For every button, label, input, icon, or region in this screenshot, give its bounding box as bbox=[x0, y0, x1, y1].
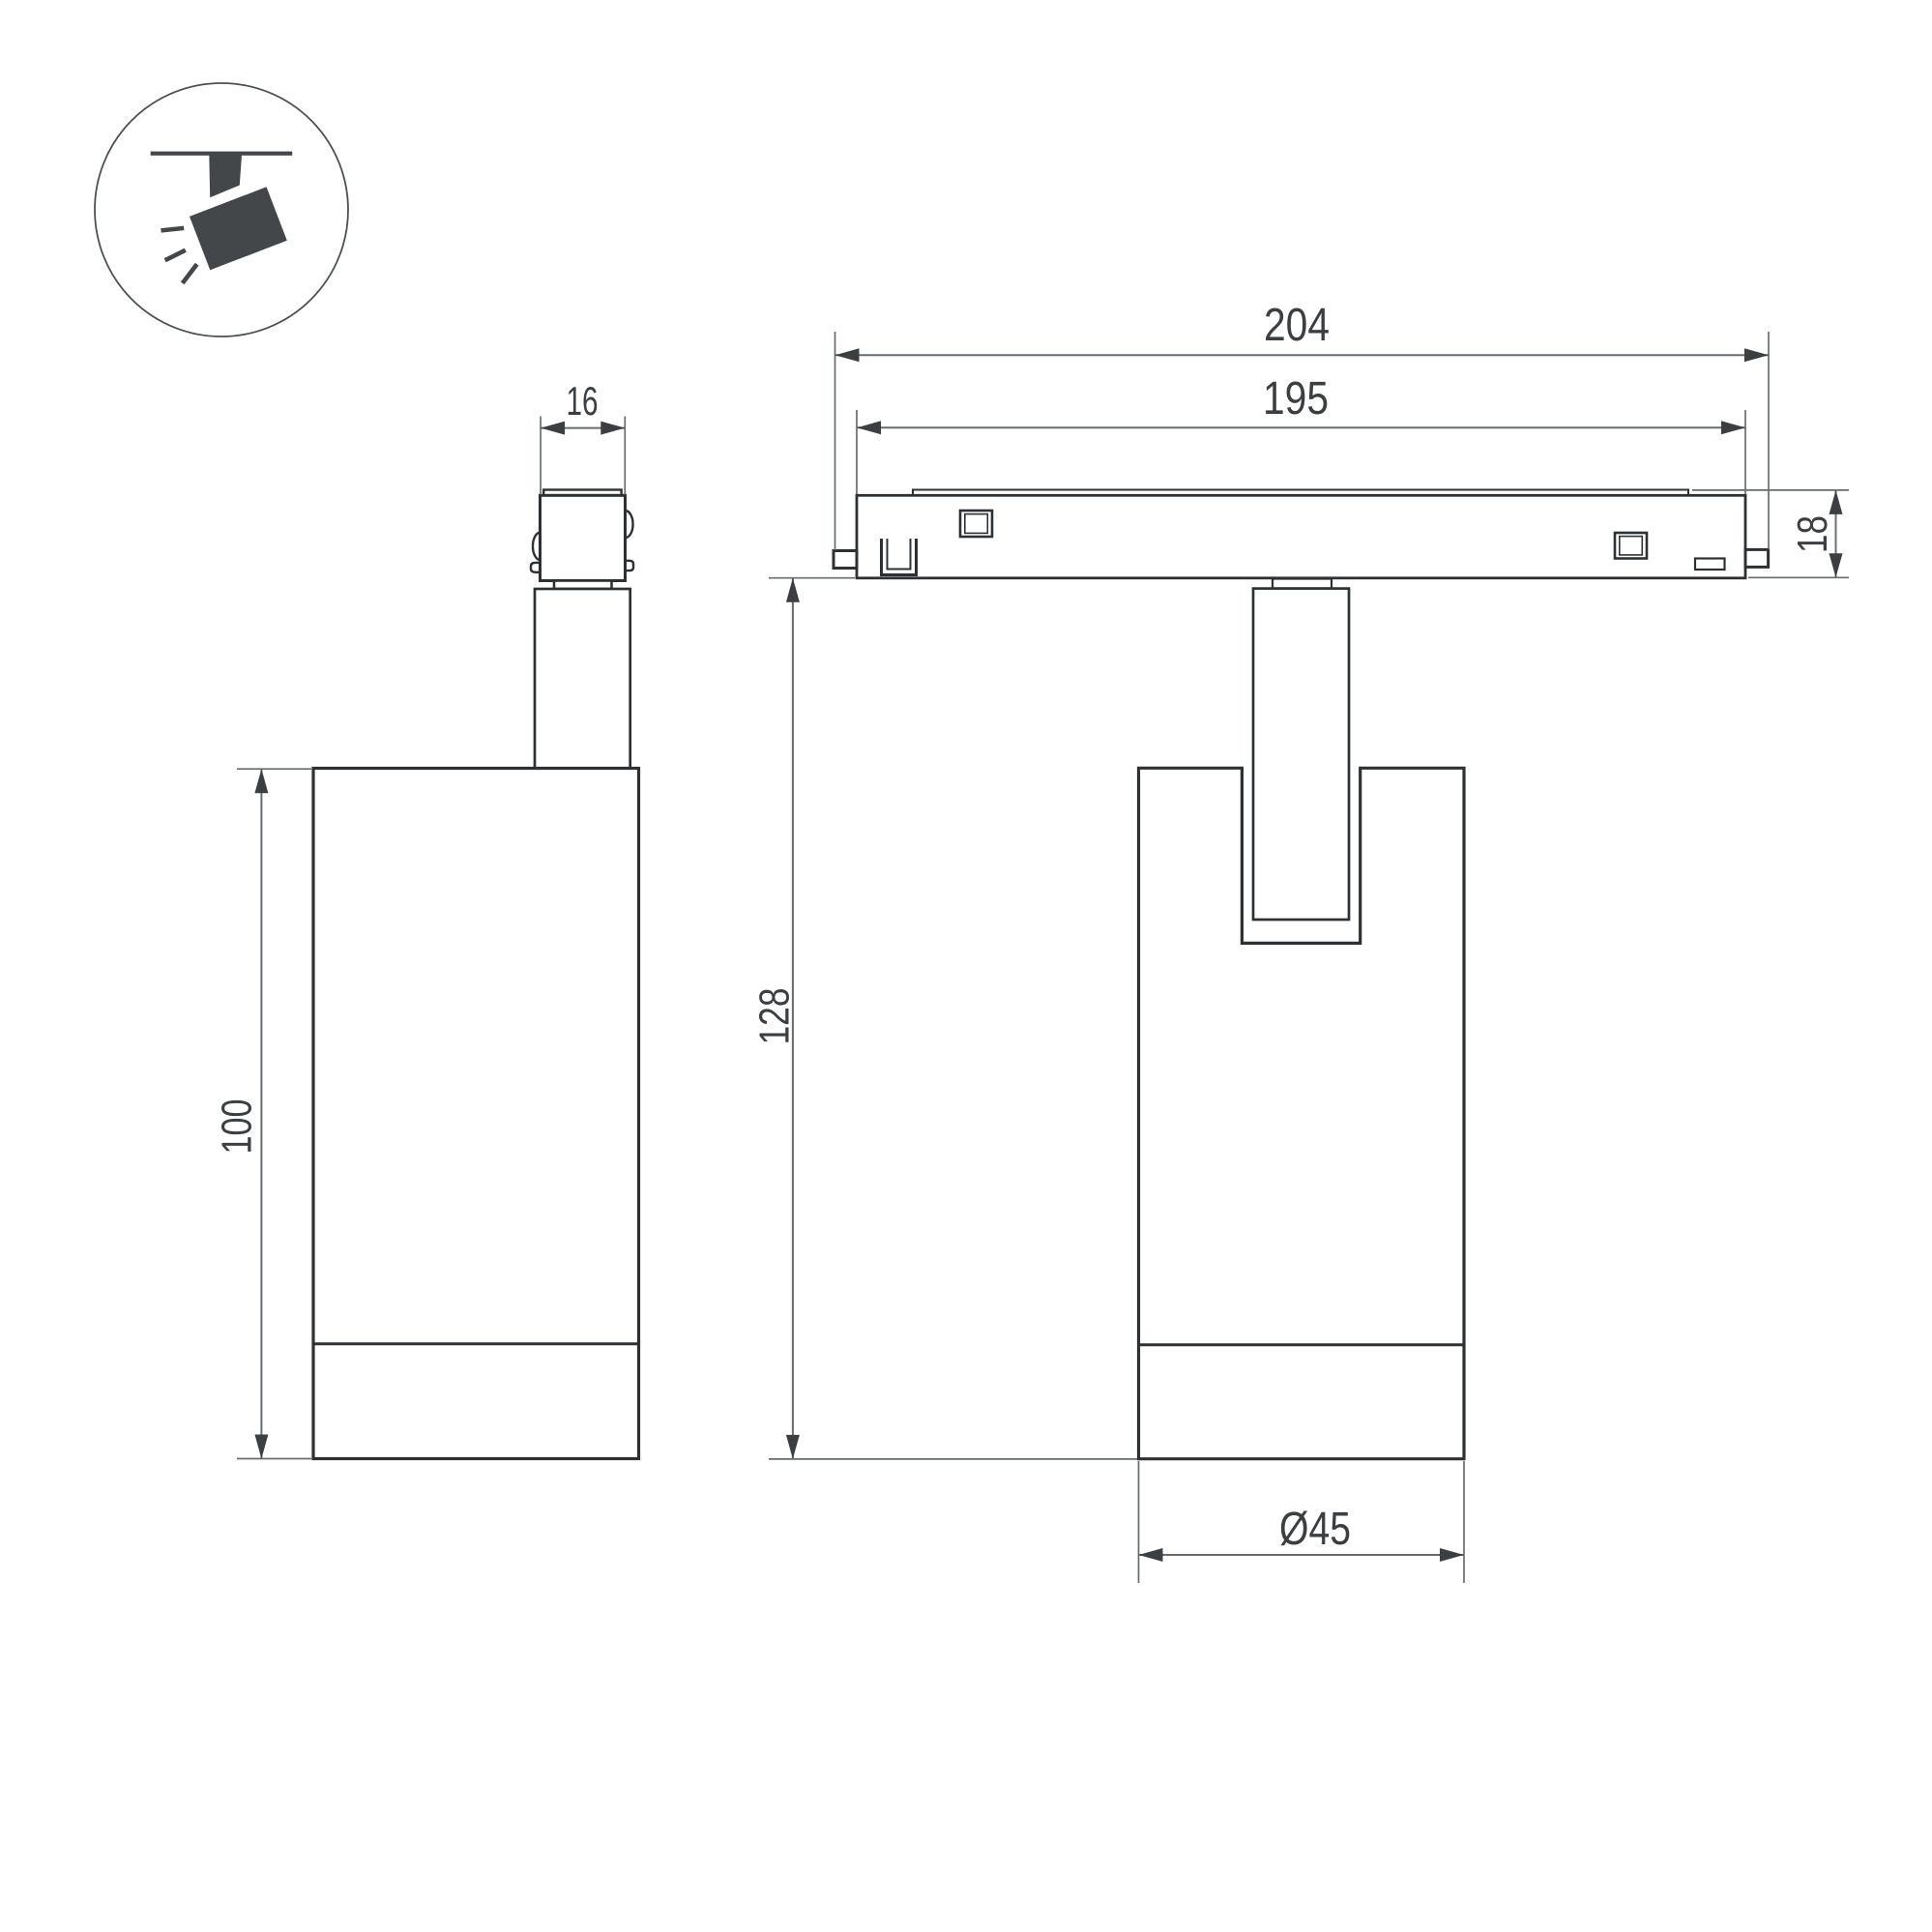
svg-text:128: 128 bbox=[751, 988, 799, 1045]
svg-text:Ø45: Ø45 bbox=[1279, 1504, 1351, 1555]
svg-text:195: 195 bbox=[1263, 373, 1329, 424]
svg-text:204: 204 bbox=[1264, 300, 1330, 351]
svg-text:18: 18 bbox=[1789, 515, 1836, 553]
svg-text:100: 100 bbox=[214, 1099, 261, 1155]
svg-text:16: 16 bbox=[567, 378, 599, 424]
